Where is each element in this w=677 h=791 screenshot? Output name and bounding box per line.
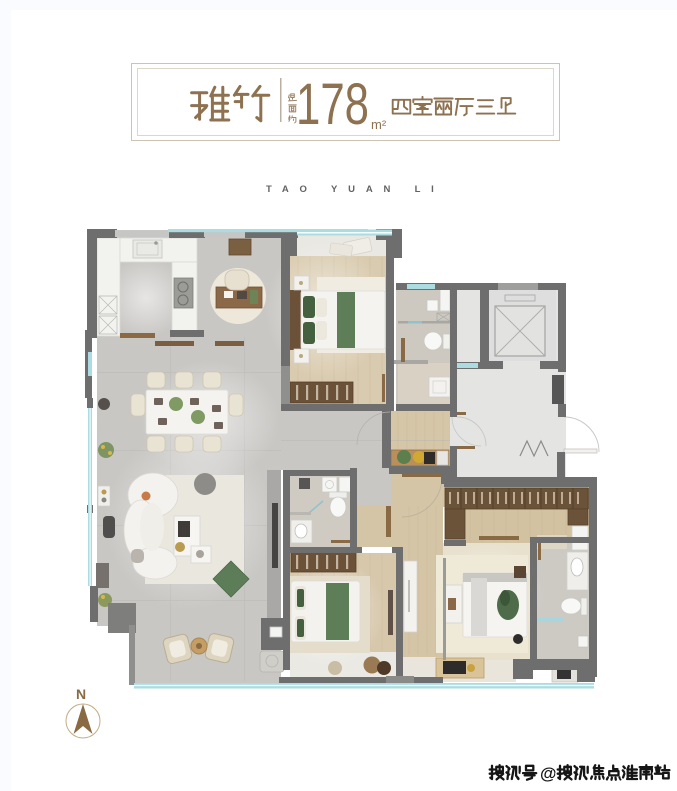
svg-text:m²: m² xyxy=(371,117,387,132)
svg-text:178: 178 xyxy=(296,72,369,137)
svg-text:@: @ xyxy=(540,764,557,783)
svg-text:N: N xyxy=(76,686,86,702)
svg-text:TAO YUAN LI: TAO YUAN LI xyxy=(266,184,445,195)
